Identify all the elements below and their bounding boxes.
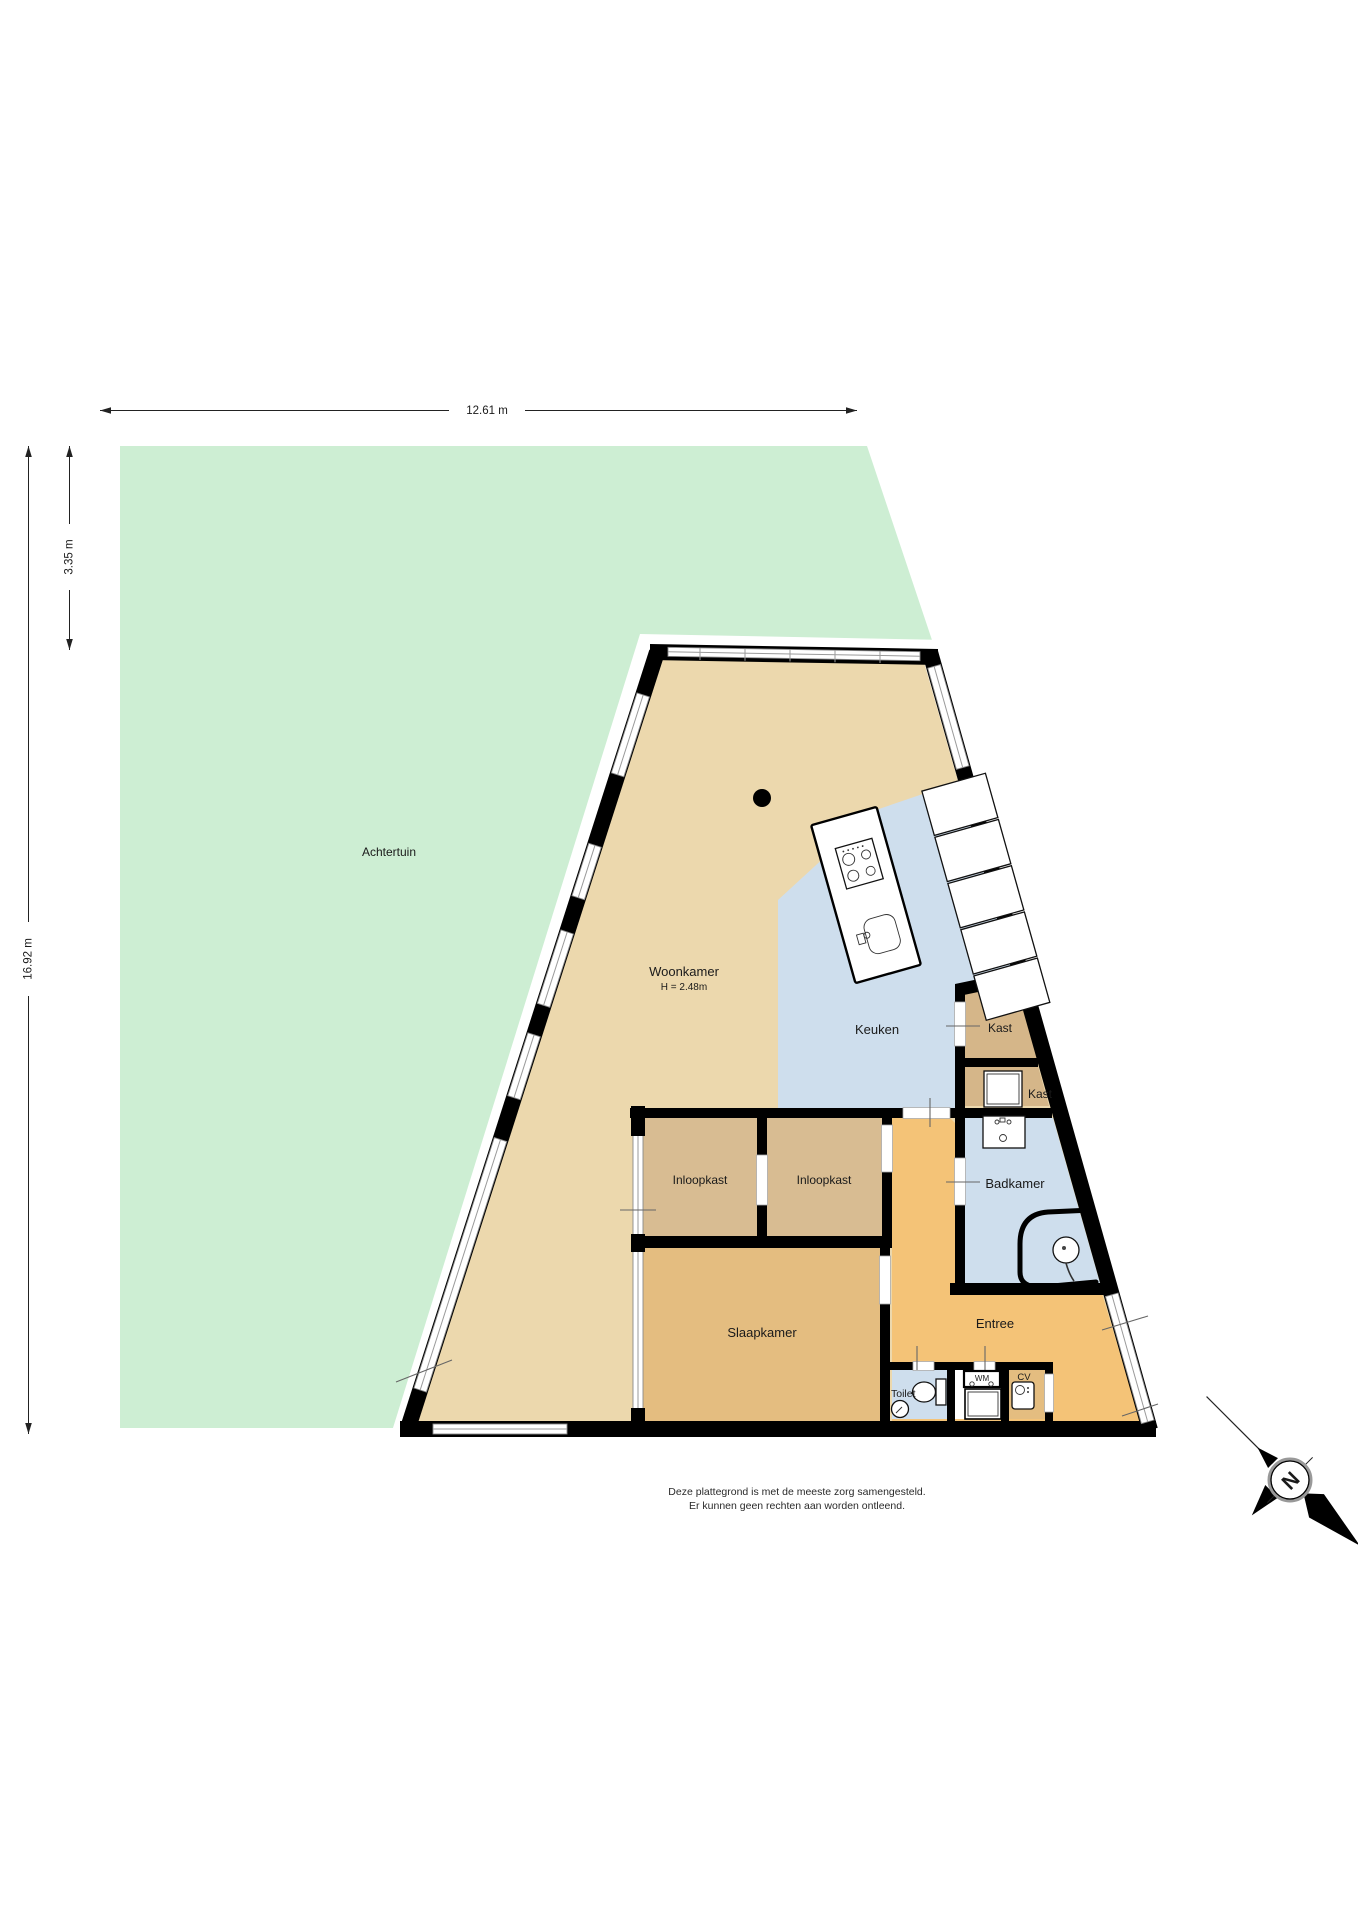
entree-label: Entree xyxy=(976,1316,1014,1331)
inloopkast-left-label: Inloopkast xyxy=(673,1173,728,1187)
slaapkamer-label: Slaapkamer xyxy=(727,1325,797,1340)
woonkamer-label: Woonkamer xyxy=(649,964,720,979)
dimension-garden-depth-label: 3.35 m xyxy=(64,539,76,574)
kast-lower-label: Kast xyxy=(1028,1087,1053,1101)
door-kast xyxy=(955,1002,966,1046)
garden-label: Achtertuin xyxy=(362,845,416,859)
door-toilet xyxy=(913,1362,934,1371)
door-cv xyxy=(1045,1374,1054,1412)
door-keuken-entree xyxy=(903,1108,950,1119)
badkamer-label: Badkamer xyxy=(985,1176,1045,1191)
kast-upper-label: Kast xyxy=(988,1021,1013,1035)
wall-wm-cv xyxy=(1001,1362,1009,1421)
north-arrow-icon: N xyxy=(1170,1374,1358,1585)
dimension-width-label: 12.61 m xyxy=(466,405,508,417)
wm-label: WM xyxy=(975,1374,990,1383)
door-inloopkast xyxy=(757,1155,768,1205)
cv-label: CV xyxy=(1017,1372,1031,1383)
bathroom-sink-icon xyxy=(983,1116,1025,1148)
compass-rose: N xyxy=(1170,1374,1358,1585)
wall-toilet-wm xyxy=(947,1362,955,1421)
toilet-label: Toilet xyxy=(891,1388,916,1400)
column-icon xyxy=(753,789,771,807)
disclaimer: Deze plattegrond is met de meeste zorg s… xyxy=(668,1486,925,1512)
door-slaapkamer xyxy=(880,1256,891,1304)
cv-boiler-icon xyxy=(1012,1382,1034,1409)
door-inloopkast-entree xyxy=(882,1125,893,1172)
wall-kast-divider xyxy=(955,1058,1038,1067)
floorplan-page: Achtertuin Woonkamer H = 2.48m Keuken Ka… xyxy=(0,0,1358,1920)
disclaimer-line-1: Deze plattegrond is met de meeste zorg s… xyxy=(668,1486,925,1498)
disclaimer-line-2: Er kunnen geen rechten aan worden ontlee… xyxy=(689,1500,905,1512)
inloopkast-right-label: Inloopkast xyxy=(797,1173,852,1187)
dimension-total-depth-label: 16.92 m xyxy=(23,938,35,980)
floorplan-svg: Achtertuin Woonkamer H = 2.48m Keuken Ka… xyxy=(0,0,1358,1920)
wall-badkamer-west xyxy=(955,1118,965,1295)
keuken-label: Keuken xyxy=(855,1022,899,1037)
boiler-cabinet-icon xyxy=(984,1071,1022,1107)
woonkamer-height-label: H = 2.48m xyxy=(661,982,707,993)
